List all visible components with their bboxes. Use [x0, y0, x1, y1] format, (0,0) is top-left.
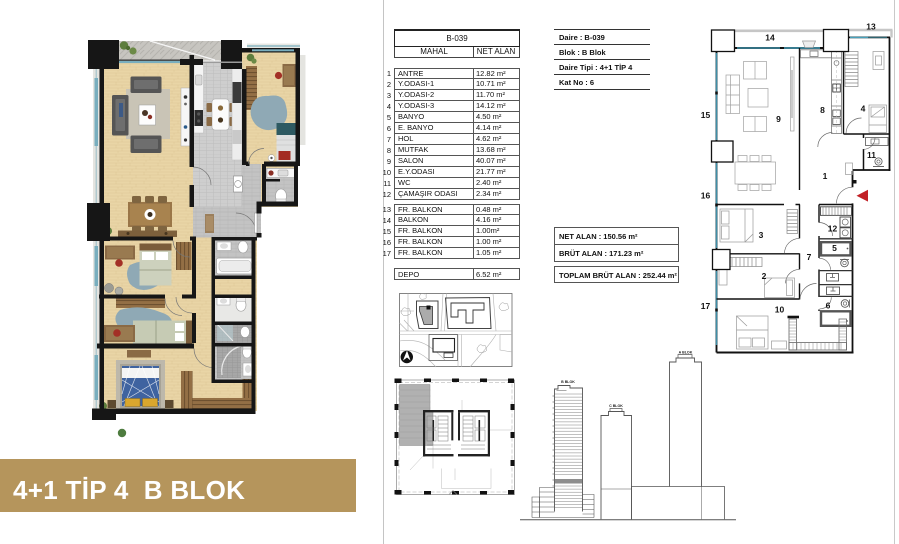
svg-text:7: 7 — [807, 252, 812, 262]
svg-text:5: 5 — [832, 243, 837, 253]
svg-text:4: 4 — [861, 104, 866, 114]
svg-text:10: 10 — [775, 305, 785, 315]
svg-text:B BLOK: B BLOK — [561, 380, 575, 384]
svg-text:12: 12 — [828, 224, 838, 234]
svg-text:3: 3 — [759, 230, 764, 240]
svg-text:1: 1 — [823, 171, 828, 181]
svg-text:9: 9 — [776, 114, 781, 124]
svg-text:A BLOK: A BLOK — [679, 351, 693, 355]
svg-text:14: 14 — [765, 33, 775, 43]
svg-text:2: 2 — [762, 271, 767, 281]
svg-text:C BLOK: C BLOK — [609, 404, 623, 408]
svg-text:8: 8 — [820, 105, 825, 115]
svg-text:6: 6 — [826, 301, 831, 311]
svg-text:13: 13 — [866, 22, 876, 32]
svg-text:11: 11 — [867, 150, 876, 160]
svg-text:17: 17 — [701, 301, 711, 311]
svg-text:15: 15 — [701, 110, 711, 120]
svg-text:16: 16 — [701, 191, 711, 201]
